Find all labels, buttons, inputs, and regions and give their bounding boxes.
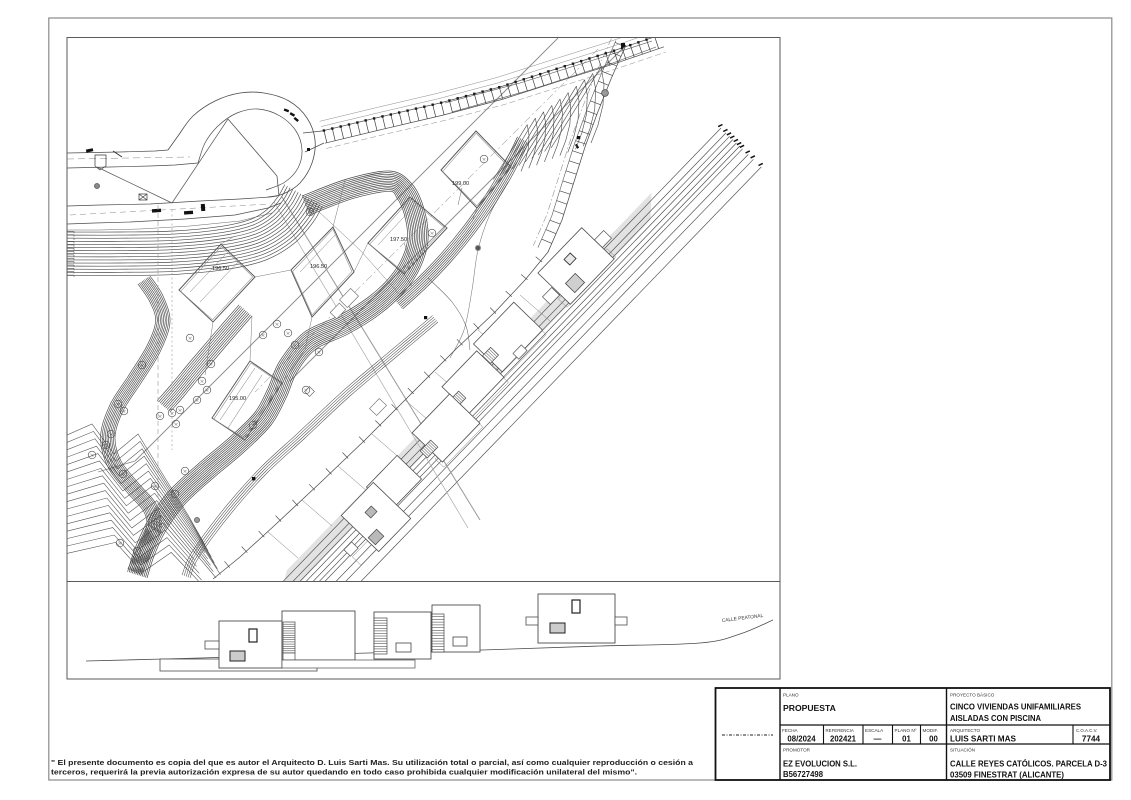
svg-text:AISLADAS CON PISCINA: AISLADAS CON PISCINA	[950, 714, 1041, 723]
svg-text:01: 01	[902, 735, 911, 744]
svg-text:MODIF.: MODIF.	[923, 728, 939, 733]
svg-text:CALLE PEATONAL: CALLE PEATONAL	[722, 613, 764, 624]
svg-text:REFERENCIA: REFERENCIA	[826, 728, 854, 733]
svg-text:SITUACIÓN: SITUACIÓN	[950, 747, 975, 753]
svg-text:202421: 202421	[830, 735, 857, 744]
svg-text:LUIS SARTI MAS: LUIS SARTI MAS	[950, 735, 1016, 744]
svg-text:7744: 7744	[1082, 735, 1101, 744]
svg-text:C.O.A.C.V.: C.O.A.C.V.	[1076, 728, 1097, 733]
svg-text:PROPUESTA: PROPUESTA	[783, 703, 836, 713]
svg-text:197.50: 197.50	[390, 237, 407, 243]
svg-text:CINCO VIVIENDAS UNIFAMILIARES: CINCO VIVIENDAS UNIFAMILIARES	[950, 703, 1082, 712]
svg-text:PROMOTOR: PROMOTOR	[783, 748, 811, 753]
svg-text:" El presente documento es cop: " El presente documento es copia del que…	[51, 758, 694, 767]
svg-text:terceros, requerirá la previa: terceros, requerirá la previa autorizaci…	[51, 768, 637, 777]
svg-text:B56727498: B56727498	[783, 770, 823, 779]
svg-text:EZ EVOLUCION S.L.: EZ EVOLUCION S.L.	[783, 760, 857, 769]
svg-text:199.00: 199.00	[452, 181, 469, 187]
svg-text:195.00: 195.00	[229, 396, 246, 402]
svg-text:FECHA: FECHA	[782, 728, 799, 733]
svg-text:CALLE REYES CATÓLICOS. PARCELA: CALLE REYES CATÓLICOS. PARCELA D-3	[950, 758, 1107, 769]
svg-text:03509 FINESTRAT (ALICANTE): 03509 FINESTRAT (ALICANTE)	[950, 771, 1064, 780]
svg-text:PLANO: PLANO	[783, 693, 799, 698]
svg-text:—: —	[874, 735, 882, 744]
svg-text:ESCALA: ESCALA	[865, 728, 884, 733]
svg-text:00: 00	[929, 735, 938, 744]
svg-text:196.50: 196.50	[310, 264, 327, 270]
svg-text:196.50: 196.50	[212, 266, 229, 272]
svg-text:PROYECTO BÁSICO: PROYECTO BÁSICO	[950, 692, 995, 698]
svg-text:ARQUITECTO: ARQUITECTO	[950, 728, 980, 733]
svg-text:PLANO Nº: PLANO Nº	[895, 728, 917, 733]
svg-text:08/2024: 08/2024	[787, 735, 816, 744]
